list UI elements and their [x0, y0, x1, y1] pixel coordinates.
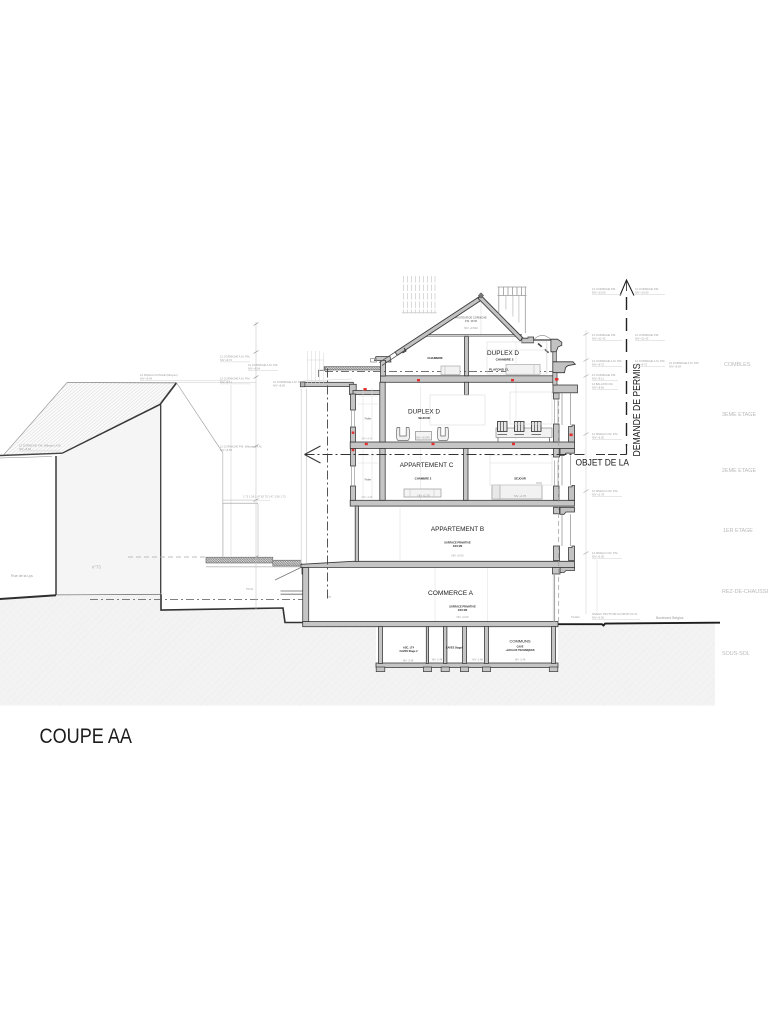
svg-text:12 CORNICHE A.M. P.M.: 12 CORNICHE A.M. P.M. [273, 380, 303, 384]
svg-text:NIV +8.66: NIV +8.66 [592, 385, 605, 389]
svg-text:SEJOUR: SEJOUR [514, 477, 526, 481]
svg-text:CAVES Stage 2: CAVES Stage 2 [399, 650, 418, 653]
svg-text:NIV +13.00: NIV +13.00 [592, 290, 606, 294]
svg-text:12 CORNICHE P.M.: 12 CORNICHE P.M. [592, 373, 616, 377]
svg-text:+LOCAUX TECHNIQUES: +LOCAUX TECHNIQUES [505, 649, 534, 652]
svg-text:NIV +4.42: NIV +4.42 [362, 438, 373, 441]
svg-text:12 NIVEAU FAITAGE (Mitoyen): 12 NIVEAU FAITAGE (Mitoyen) [140, 373, 178, 377]
svg-text:COMMERCE A: COMMERCE A [428, 590, 474, 597]
svg-text:12 NIVEAU N.M. P.M.: 12 NIVEAU N.M. P.M. [592, 432, 618, 436]
svg-text:COMMUNS: COMMUNS [509, 639, 530, 644]
svg-text:NIV +0.35: NIV +0.35 [592, 554, 605, 558]
svg-text:75: 75 [328, 595, 331, 599]
svg-text:12 BALCON N.M.: 12 BALCON N.M. [592, 382, 613, 386]
svg-text:NIV +0.00: NIV +0.00 [592, 615, 605, 619]
svg-text:DUPLEX D: DUPLEX D [487, 350, 519, 357]
svg-text:P.M. 38.56: P.M. 38.56 [465, 319, 478, 323]
svg-text:COUPE AA: COUPE AA [40, 725, 133, 748]
svg-text:PLAFOND CL: PLAFOND CL [489, 367, 509, 371]
svg-text:Palier: Palier [365, 478, 372, 482]
svg-text:NIV +5.545: NIV +5.545 [416, 436, 430, 440]
svg-text:NIV +9.72: NIV +9.72 [635, 362, 648, 366]
svg-text:12 CORNICHE A.M. P.M.: 12 CORNICHE A.M. P.M. [220, 355, 250, 359]
svg-text:DUPLEX D: DUPLEX D [408, 409, 440, 416]
svg-text:NIV +9.54: NIV +9.54 [669, 364, 682, 368]
svg-text:NIV -2.48: NIV -2.48 [472, 659, 483, 662]
svg-text:XXX M2: XXX M2 [458, 608, 468, 612]
svg-text:NIV +0.00: NIV +0.00 [456, 615, 469, 619]
svg-text:Rue de la Lys: Rue de la Lys [11, 574, 33, 578]
svg-text:NIV +5.55: NIV +5.55 [592, 435, 605, 439]
svg-text:APPARTEMENT B: APPARTEMENT B [431, 526, 484, 533]
svg-text:12 CORNICHE P.M.: 12 CORNICHE P.M. [635, 333, 659, 337]
svg-text:NIV +1.66: NIV +1.66 [362, 496, 373, 499]
svg-text:12 CORNICHE P.M.: 12 CORNICHE P.M. [635, 287, 659, 291]
svg-text:Trottoir: Trottoir [571, 615, 580, 619]
svg-text:12 NIVEAU N.M. P.M.: 12 NIVEAU N.M. P.M. [592, 489, 618, 493]
svg-text:12 CORNICHE P.M. (Mitoyen) A.M: 12 CORNICHE P.M. (Mitoyen) A.M. [19, 444, 61, 448]
svg-text:NIV +8.66: NIV +8.66 [273, 383, 286, 387]
svg-text:Palier: Palier [365, 417, 372, 421]
svg-text:NIV +9.72: NIV +9.72 [220, 358, 233, 362]
svg-text:12 CORNICHE A.M. P.M.: 12 CORNICHE A.M. P.M. [635, 359, 665, 363]
svg-text:CHAMBRE: CHAMBRE [427, 356, 442, 360]
svg-text:SEJOUR: SEJOUR [418, 416, 430, 420]
svg-text:DEMANDE DE PERMIS: DEMANDE DE PERMIS [631, 364, 643, 457]
svg-text:NIV -2.48: NIV -2.48 [515, 659, 526, 662]
svg-text:NIV +9.54: NIV +9.54 [248, 366, 261, 370]
svg-text:NIV +11.42: NIV +11.42 [635, 336, 649, 340]
svg-text:12 CORNICHE P.M.: 12 CORNICHE P.M. [592, 287, 616, 291]
svg-text:NIV +13.00: NIV +13.00 [635, 290, 649, 294]
svg-text:NIV +9.540: NIV +9.540 [464, 326, 478, 330]
svg-text:NIV -2.48: NIV -2.48 [432, 659, 443, 662]
svg-text:12 CORNICHE P.M. (Mitoyen) A.M: 12 CORNICHE P.M. (Mitoyen) A.M. [220, 445, 262, 449]
svg-text:1.72 1.56 1.47 63 75 1.47 1.56: 1.72 1.56 1.47 63 75 1.47 1.56 1.72 [243, 494, 286, 498]
svg-text:CAVES Stage1: CAVES Stage1 [446, 647, 464, 650]
svg-text:NIV +2.78: NIV +2.78 [417, 494, 430, 498]
svg-text:COMBLES: COMBLES [724, 362, 751, 368]
svg-text:12 CORNICHE A.M. P.M.: 12 CORNICHE A.M. P.M. [248, 363, 278, 367]
svg-text:NIV +11.42: NIV +11.42 [592, 336, 606, 340]
svg-text:NIV -2.48: NIV -2.48 [403, 660, 414, 663]
svg-text:NIV +9.72: NIV +9.72 [592, 362, 605, 366]
svg-text:XXX M2: XXX M2 [453, 544, 463, 548]
svg-text:Boulevard Belgica: Boulevard Belgica [656, 616, 683, 620]
svg-text:NIV +5.50: NIV +5.50 [220, 448, 233, 452]
svg-text:NIV +5.54: NIV +5.54 [19, 447, 32, 451]
svg-text:NIVEAU TROTTOIR AU DROIT DU N.: NIVEAU TROTTOIR AU DROIT DU N. [592, 612, 638, 616]
svg-text:NIV +9.04: NIV +9.04 [140, 376, 153, 380]
svg-text:OBJET DE LA: OBJET DE LA [576, 457, 630, 468]
svg-text:1ER ETAGE: 1ER ETAGE [723, 528, 753, 534]
svg-text:n°73: n°73 [92, 565, 101, 570]
svg-text:NIV +9.11: NIV +9.11 [592, 376, 604, 380]
svg-text:12 NIVEAU N.M. P.M.: 12 NIVEAU N.M. P.M. [592, 551, 618, 555]
svg-text:NIV +0.00: NIV +0.00 [451, 554, 464, 558]
svg-text:NIV +2.78: NIV +2.78 [592, 492, 605, 496]
svg-text:12 CORNICHE A.M. P.M.: 12 CORNICHE A.M. P.M. [592, 359, 622, 363]
svg-text:CHAMBRE 2: CHAMBRE 2 [415, 477, 432, 481]
svg-text:12 CORNICHE P.M.: 12 CORNICHE P.M. [592, 333, 616, 337]
svg-text:12 CORNICHE A.M. P.M.: 12 CORNICHE A.M. P.M. [669, 361, 699, 365]
svg-text:REZ-DE-CHAUSSEE: REZ-DE-CHAUSSEE [722, 589, 768, 595]
svg-text:TR.01: TR.01 [246, 587, 254, 591]
svg-text:12 CORNICHE A.M. P.M.: 12 CORNICHE A.M. P.M. [220, 377, 250, 381]
svg-text:APPARTEMENT C: APPARTEMENT C [400, 462, 454, 469]
svg-text:SOUS-SOL: SOUS-SOL [722, 651, 750, 657]
svg-text:3EME ETAGE: 3EME ETAGE [722, 412, 756, 418]
svg-text:NIV +2.78: NIV +2.78 [514, 494, 527, 498]
svg-text:2EME ETAGE: 2EME ETAGE [722, 468, 756, 474]
svg-text:CHAMBRE 2: CHAMBRE 2 [496, 358, 514, 362]
